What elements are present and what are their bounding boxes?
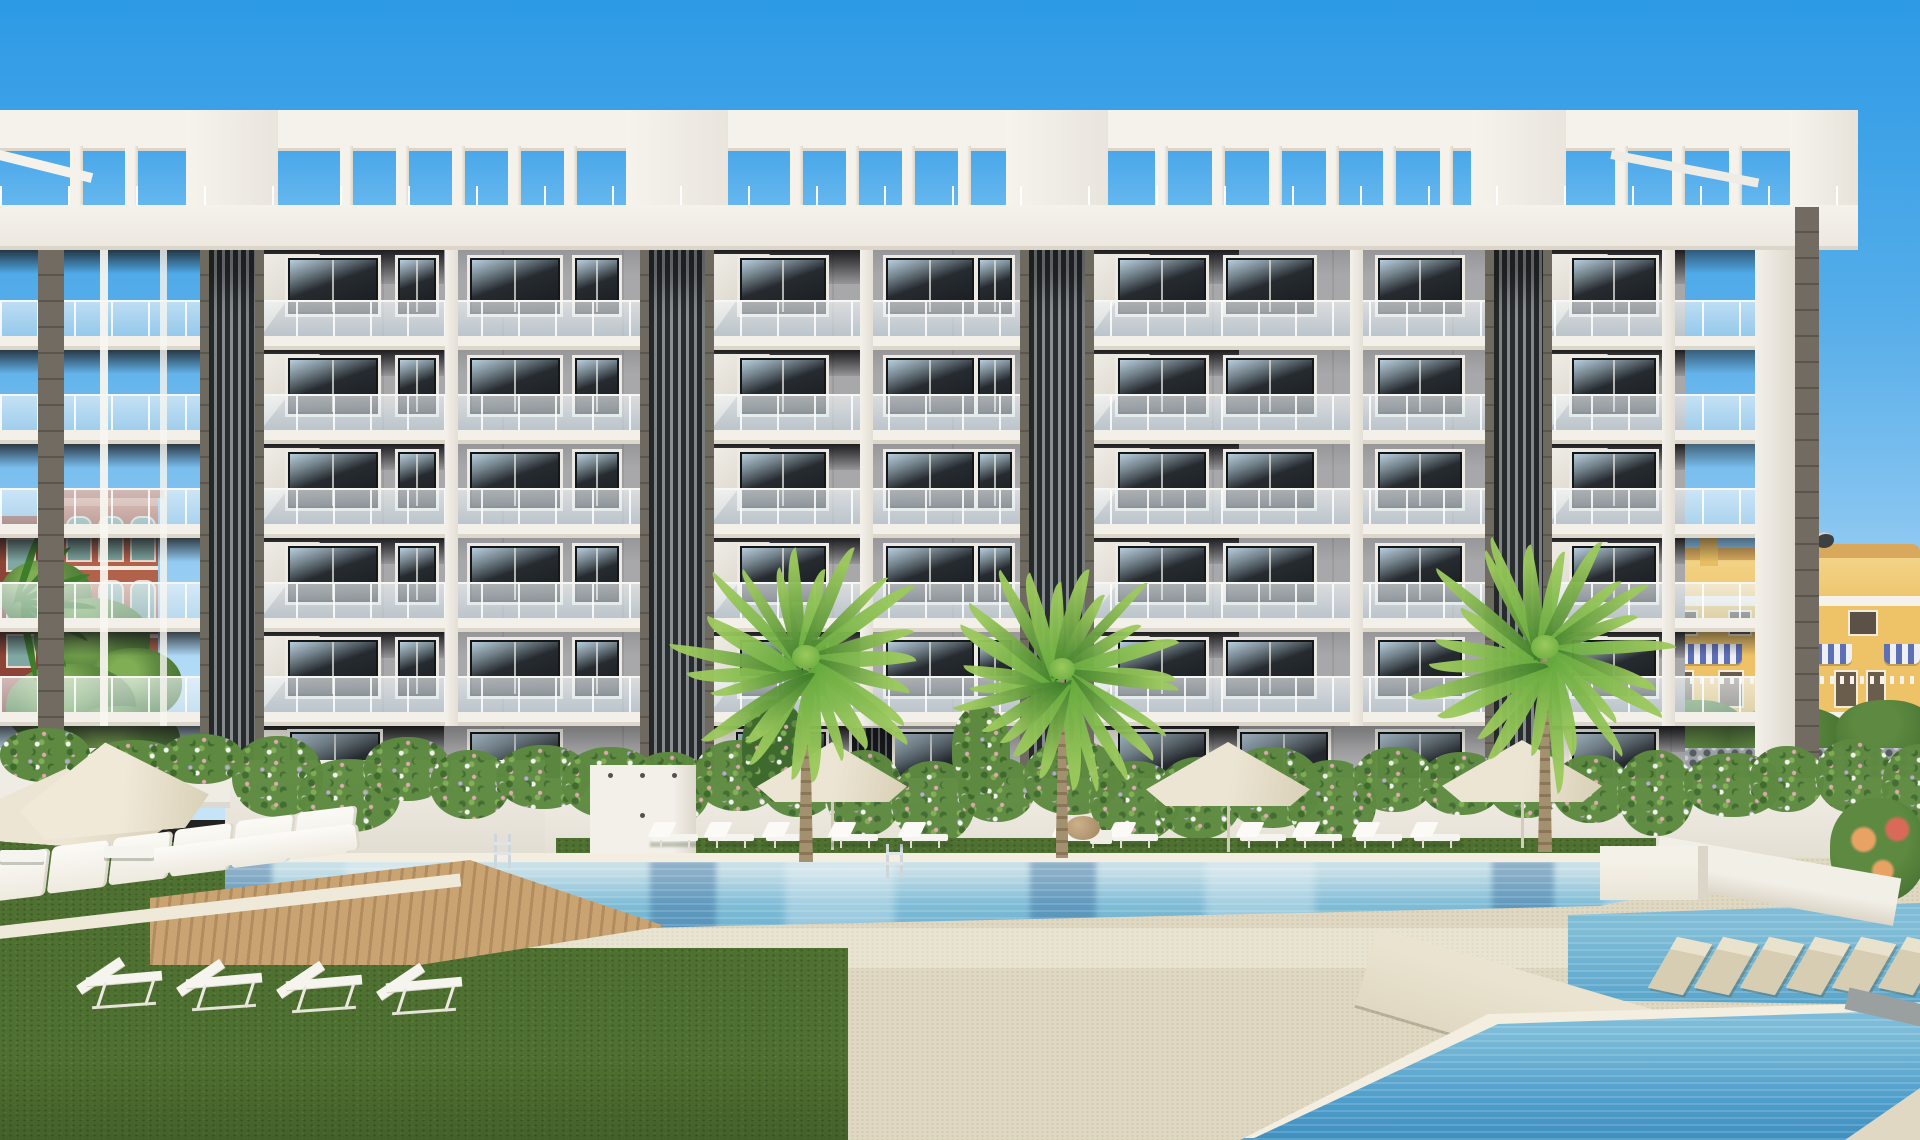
palm-crown-center xyxy=(792,645,820,669)
palm-crown-center xyxy=(1531,635,1559,659)
pool-courtyard-render xyxy=(0,0,1920,1140)
palm-trees xyxy=(0,0,1920,1140)
